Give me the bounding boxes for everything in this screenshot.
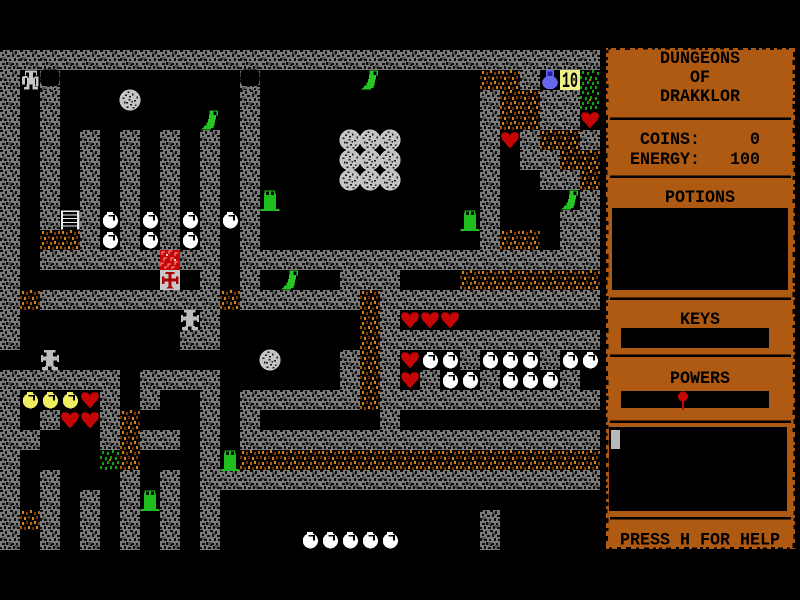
- svg-text:ENERGY:: ENERGY:: [630, 151, 700, 170]
- svg-text:0: 0: [750, 131, 760, 150]
- svg-text:OF: OF: [690, 69, 710, 88]
- svg-text:DRAKKLOR: DRAKKLOR: [660, 88, 741, 107]
- svg-text:DUNGEONS: DUNGEONS: [660, 50, 740, 69]
- svg-text:POTIONS: POTIONS: [665, 189, 735, 208]
- svg-text:POWERS: POWERS: [670, 370, 730, 389]
- svg-text:PRESS H FOR HELP: PRESS H FOR HELP: [620, 532, 780, 551]
- svg-text:COINS:: COINS:: [640, 131, 700, 150]
- svg-text:100: 100: [730, 151, 760, 170]
- svg-text:KEYS: KEYS: [680, 311, 720, 330]
